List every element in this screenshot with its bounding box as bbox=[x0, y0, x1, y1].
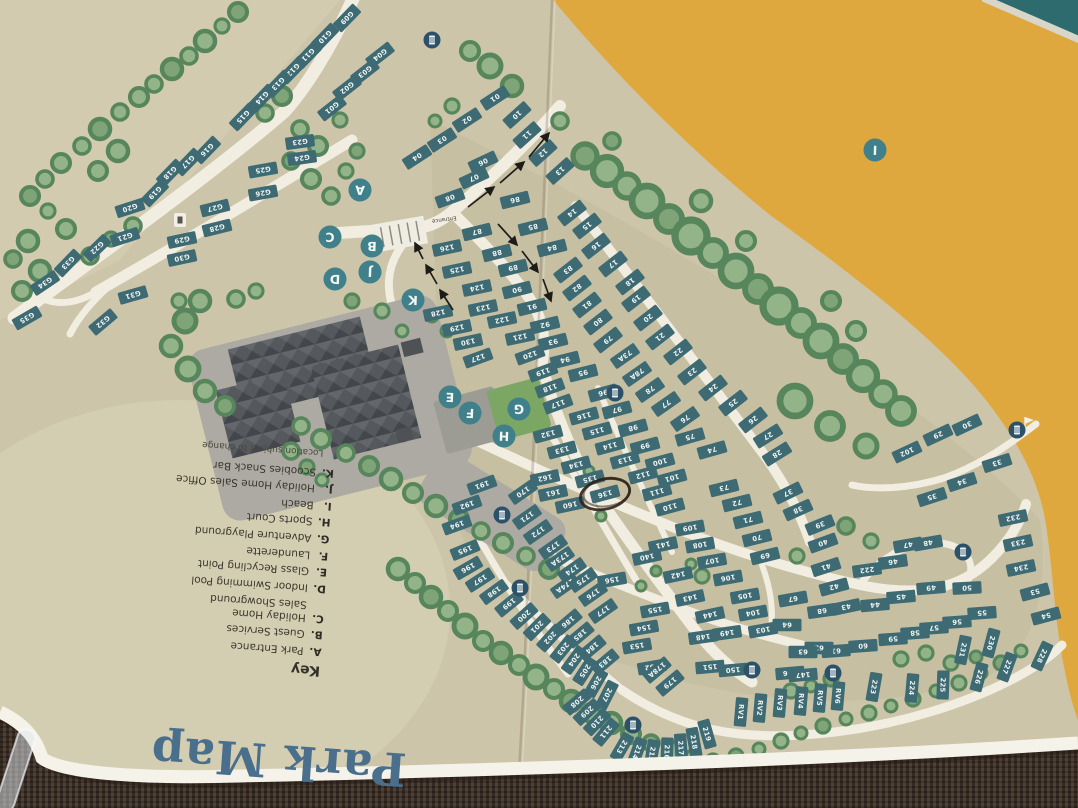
plot-224: 224 bbox=[905, 673, 920, 703]
plot-label: 151 bbox=[702, 662, 717, 671]
plot-RV2: RV2 bbox=[753, 693, 768, 723]
tree bbox=[780, 386, 810, 416]
tree bbox=[312, 430, 330, 448]
tree bbox=[89, 162, 107, 180]
plot-63: 63 bbox=[789, 646, 818, 658]
tree bbox=[494, 534, 512, 552]
tree bbox=[18, 231, 38, 251]
tree bbox=[112, 104, 128, 120]
tree bbox=[1015, 645, 1027, 657]
tree bbox=[396, 325, 408, 337]
plot-label: 56 bbox=[952, 617, 962, 626]
plot-label: RV3 bbox=[775, 695, 784, 712]
tree bbox=[345, 294, 359, 308]
tree bbox=[228, 291, 244, 307]
plot-RV5: RV5 bbox=[813, 683, 828, 713]
tree bbox=[404, 484, 422, 502]
tree bbox=[479, 55, 501, 77]
marker-letter: A bbox=[355, 183, 366, 198]
marker-letter: G bbox=[514, 402, 525, 417]
pen-cap bbox=[0, 727, 38, 808]
tree bbox=[302, 170, 320, 188]
marker-letter: F bbox=[465, 406, 474, 421]
plot-49: 49 bbox=[916, 581, 946, 596]
tree bbox=[333, 113, 347, 127]
waste-bin-icon bbox=[955, 544, 972, 561]
marker-letter: H bbox=[498, 429, 509, 444]
plot-label: 147 bbox=[795, 670, 810, 679]
plot-label: 46 bbox=[887, 557, 898, 566]
waste-bin-icon bbox=[625, 717, 642, 734]
tree bbox=[216, 397, 234, 415]
tree bbox=[190, 291, 210, 311]
tree bbox=[445, 99, 459, 113]
waste-bin-icon bbox=[494, 507, 511, 524]
plot-44: 44 bbox=[860, 598, 890, 613]
marker-letter: B bbox=[367, 239, 377, 254]
tree bbox=[885, 700, 897, 712]
tree bbox=[790, 549, 804, 563]
tree bbox=[41, 204, 55, 218]
marker-letter: C bbox=[325, 230, 335, 245]
recycling-sign-icon bbox=[174, 213, 186, 227]
tree bbox=[439, 602, 457, 620]
tree bbox=[13, 282, 31, 300]
plot-151: 151 bbox=[695, 660, 725, 675]
marker-letter: J bbox=[367, 265, 373, 280]
tree bbox=[596, 511, 606, 521]
tree bbox=[381, 469, 401, 489]
plot-label: 45 bbox=[896, 592, 907, 601]
plot-label: RV5 bbox=[815, 690, 824, 707]
tree bbox=[90, 119, 110, 139]
plot-label: RV1 bbox=[736, 704, 745, 721]
tree bbox=[691, 191, 711, 211]
plot-RV1: RV1 bbox=[734, 697, 749, 727]
tree bbox=[461, 42, 479, 60]
plot-label: RV2 bbox=[755, 700, 764, 717]
tree bbox=[840, 713, 852, 725]
photo-of-park-map: G01G02G03G04G09G10G11G12G13G14G15G16G17G… bbox=[0, 0, 1078, 808]
tree bbox=[636, 581, 646, 591]
tree bbox=[795, 727, 807, 739]
tree bbox=[215, 19, 229, 33]
tree bbox=[421, 587, 441, 607]
tree bbox=[855, 435, 877, 457]
plot-label: RV6 bbox=[833, 688, 842, 705]
tree bbox=[838, 518, 854, 534]
tree bbox=[174, 310, 196, 332]
tree bbox=[146, 76, 162, 92]
plot-label: 63 bbox=[798, 648, 808, 656]
marker-letter: E bbox=[445, 390, 454, 405]
tree bbox=[426, 496, 446, 516]
tree bbox=[919, 646, 933, 660]
plot-50: 50 bbox=[952, 581, 982, 595]
tree bbox=[737, 232, 755, 250]
tree bbox=[894, 652, 908, 666]
tree bbox=[552, 113, 568, 129]
waste-bin-icon bbox=[607, 385, 624, 402]
tree bbox=[375, 304, 389, 318]
tree bbox=[406, 574, 424, 592]
plot-45: 45 bbox=[886, 590, 916, 605]
map-legend: Key A.Park Entrance B.Guest Services C.H… bbox=[20, 428, 335, 679]
plot-label: 49 bbox=[926, 583, 937, 592]
plot-225: 225 bbox=[936, 670, 949, 699]
waste-bin-icon bbox=[744, 662, 761, 679]
tree bbox=[604, 133, 620, 149]
tree bbox=[195, 381, 215, 401]
waste-bin-icon bbox=[825, 665, 842, 682]
waste-bin-icon bbox=[424, 32, 441, 49]
tree bbox=[323, 188, 339, 204]
tree bbox=[74, 138, 90, 154]
tree bbox=[388, 559, 408, 579]
plot-label: RV4 bbox=[796, 693, 805, 710]
tree bbox=[292, 121, 308, 137]
tree bbox=[862, 706, 876, 720]
tree bbox=[161, 336, 181, 356]
plot-147: 147 bbox=[788, 668, 818, 683]
plot-RV3: RV3 bbox=[773, 688, 788, 718]
tree bbox=[108, 141, 128, 161]
tree bbox=[695, 569, 709, 583]
plot-label: 47 bbox=[902, 540, 913, 550]
plot-label: 225 bbox=[938, 677, 947, 692]
plot-label: 60 bbox=[858, 641, 868, 650]
tree bbox=[249, 284, 263, 298]
tree bbox=[473, 523, 489, 539]
plot-label: 68 bbox=[816, 606, 827, 615]
plot-label: 48 bbox=[922, 538, 933, 548]
plot-60: 60 bbox=[848, 639, 878, 653]
plot-55: 55 bbox=[967, 606, 997, 620]
tree bbox=[172, 294, 186, 308]
tree bbox=[525, 666, 547, 688]
plot-label: 44 bbox=[870, 600, 881, 609]
tree bbox=[864, 534, 878, 548]
tree bbox=[338, 445, 354, 461]
tree bbox=[360, 457, 378, 475]
tree bbox=[37, 171, 53, 187]
plot-label: 57 bbox=[929, 623, 939, 632]
tree bbox=[52, 154, 70, 172]
plot-label: 224 bbox=[907, 680, 916, 695]
tree bbox=[181, 48, 197, 64]
tree bbox=[491, 643, 511, 663]
tree bbox=[847, 322, 865, 340]
plot-59: 59 bbox=[878, 632, 908, 646]
plot-label: 217 bbox=[676, 740, 685, 755]
tree bbox=[774, 734, 788, 748]
tree bbox=[817, 413, 843, 439]
tree bbox=[429, 115, 441, 127]
tree bbox=[952, 676, 966, 690]
tree bbox=[454, 615, 476, 637]
tree bbox=[339, 164, 353, 178]
marker-letter: I bbox=[872, 143, 877, 158]
tree bbox=[5, 251, 21, 267]
plot-RV4: RV4 bbox=[794, 686, 809, 716]
plot-label: 64 bbox=[782, 621, 792, 629]
tree bbox=[21, 187, 39, 205]
plot-label: 58 bbox=[910, 628, 920, 637]
tree bbox=[293, 418, 309, 434]
tree bbox=[518, 548, 534, 564]
tree bbox=[177, 358, 199, 380]
plot-RV6: RV6 bbox=[831, 681, 846, 711]
plot-label: 150 bbox=[725, 665, 740, 674]
tree bbox=[195, 31, 215, 51]
tree bbox=[229, 3, 247, 21]
tree bbox=[350, 144, 364, 158]
tree bbox=[816, 719, 830, 733]
tree bbox=[162, 59, 182, 79]
plot-label: 50 bbox=[962, 583, 972, 592]
tree bbox=[651, 566, 661, 576]
plot-label: 67 bbox=[787, 594, 798, 604]
tree bbox=[474, 632, 492, 650]
marker-letter: D bbox=[330, 272, 341, 287]
tree bbox=[822, 292, 840, 310]
tree bbox=[57, 220, 75, 238]
tree bbox=[888, 398, 914, 424]
waste-bin-icon bbox=[512, 580, 529, 597]
tree bbox=[970, 651, 982, 663]
plot-label: 55 bbox=[977, 608, 987, 617]
plot-label: 59 bbox=[888, 634, 898, 643]
tree bbox=[130, 88, 148, 106]
